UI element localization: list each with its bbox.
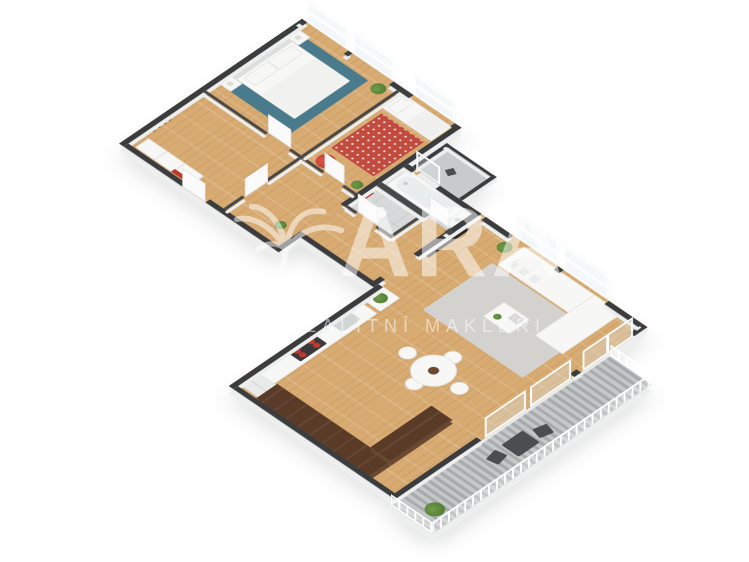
floor-plan-render: ARA REALITNÍ MAKLÉŘI: [0, 0, 749, 562]
hob-burner-icon: [311, 342, 322, 349]
hob-burner-icon: [291, 348, 302, 355]
lamp-icon: [293, 34, 302, 40]
hob-burner-icon: [305, 338, 316, 345]
fridge-door-line: [247, 378, 266, 391]
wardrobe-divider: [154, 151, 167, 160]
apartment-3d-plan: [0, 1, 749, 550]
